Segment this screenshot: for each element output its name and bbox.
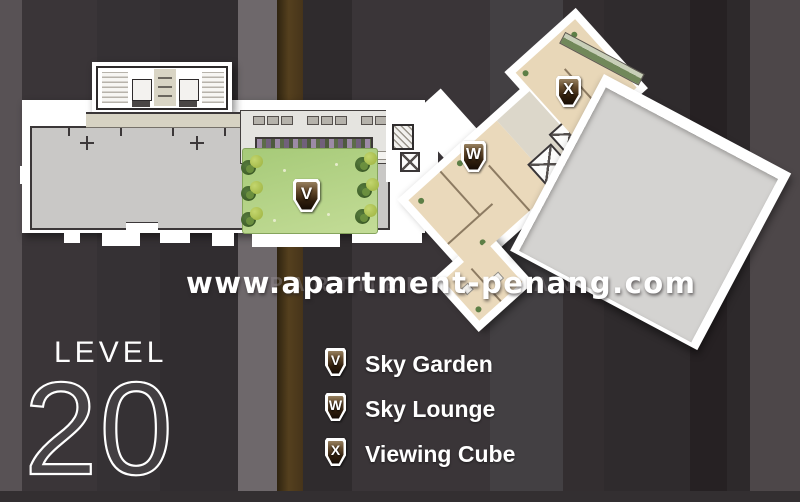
lift-box bbox=[132, 79, 152, 101]
stair-room bbox=[102, 72, 128, 103]
left-building-bump bbox=[64, 233, 80, 243]
tree-icon bbox=[355, 204, 379, 226]
legend-badge-sky-lounge: W bbox=[325, 393, 346, 421]
left-building-bump bbox=[160, 233, 190, 243]
marker-letter: V bbox=[293, 184, 320, 204]
wall-stub bbox=[120, 128, 122, 136]
core-box bbox=[179, 101, 197, 107]
legend-symbol: V bbox=[325, 352, 346, 368]
garden-speck bbox=[327, 213, 330, 216]
garden-speck bbox=[273, 219, 276, 222]
legend-label-sky-garden: Sky Garden bbox=[365, 351, 493, 378]
legend-label-viewing-cube: Viewing Cube bbox=[365, 441, 515, 468]
balcony-step bbox=[126, 222, 158, 231]
legend-symbol: X bbox=[325, 442, 346, 458]
core-lobby bbox=[154, 69, 176, 106]
elevator-core bbox=[96, 66, 228, 110]
marker-viewing-cube: X bbox=[556, 76, 581, 107]
stair-line bbox=[158, 95, 172, 97]
level-number: 20 bbox=[24, 360, 175, 499]
tree-icon bbox=[355, 152, 379, 174]
garden-speck bbox=[283, 169, 286, 172]
link-stair-box bbox=[392, 124, 414, 150]
tree-icon bbox=[241, 207, 265, 229]
core-box bbox=[132, 101, 150, 107]
column-mark bbox=[80, 136, 94, 150]
legend-badge-sky-garden: V bbox=[325, 348, 346, 376]
wall-stub bbox=[68, 128, 70, 136]
plant-icon bbox=[521, 69, 529, 77]
room-wall bbox=[488, 165, 530, 211]
legend-badge-viewing-cube: X bbox=[325, 438, 346, 466]
marker-letter: X bbox=[556, 81, 581, 99]
plant-icon bbox=[474, 305, 482, 313]
stair-line bbox=[158, 77, 172, 79]
tree-icon bbox=[241, 181, 265, 203]
room-wall bbox=[447, 203, 493, 244]
watermark: www.apartment-penang.com bbox=[186, 266, 696, 300]
wall-stub bbox=[172, 128, 174, 136]
tree-icon bbox=[357, 178, 381, 200]
wall-stub bbox=[224, 128, 226, 136]
column-mark bbox=[190, 136, 204, 150]
left-building-bump bbox=[212, 233, 234, 246]
marker-sky-garden: V bbox=[293, 179, 320, 212]
edge-notch bbox=[20, 166, 32, 184]
planter-row bbox=[307, 116, 347, 125]
marker-sky-lounge: W bbox=[461, 141, 486, 172]
stair-line bbox=[158, 86, 172, 88]
lift-box bbox=[179, 79, 199, 101]
garden-speck bbox=[335, 163, 338, 166]
page: { "watermark": { "main": "www.apartment-… bbox=[0, 0, 800, 491]
left-building-bump bbox=[252, 233, 340, 247]
left-building-bump bbox=[102, 233, 140, 246]
room-wall bbox=[440, 171, 481, 217]
stair-room bbox=[202, 72, 224, 103]
legend-label-sky-lounge: Sky Lounge bbox=[365, 396, 495, 423]
legend-symbol: W bbox=[325, 397, 346, 413]
link-lift-box bbox=[400, 152, 420, 172]
marker-letter: W bbox=[461, 146, 486, 164]
planter-row bbox=[253, 116, 293, 125]
plant-icon bbox=[417, 197, 425, 205]
tree-icon bbox=[241, 155, 265, 177]
left-building-bump bbox=[352, 233, 422, 243]
